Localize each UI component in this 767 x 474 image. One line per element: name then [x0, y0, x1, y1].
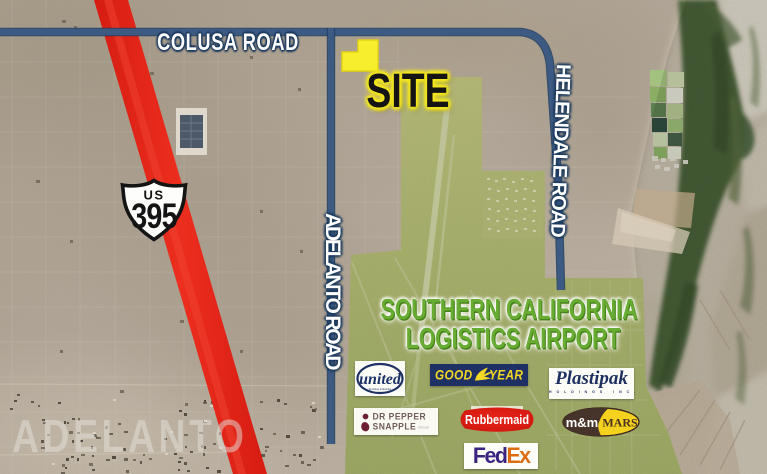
svg-text:GROUP: GROUP — [418, 426, 429, 430]
svg-text:Rubbermaid: Rubbermaid — [465, 413, 529, 427]
svg-text:YEAR: YEAR — [489, 367, 523, 383]
svg-text:395: 395 — [131, 196, 177, 235]
svg-text:SNAPPLE: SNAPPLE — [373, 421, 417, 431]
svg-text:GOOD: GOOD — [435, 367, 473, 383]
svg-text:united: united — [359, 371, 402, 388]
svg-text:MARS: MARS — [602, 416, 638, 430]
svg-text:Furniture Industries: Furniture Industries — [369, 387, 392, 391]
svg-text:m&m: m&m — [566, 415, 599, 430]
svg-text:DR PEPPER: DR PEPPER — [373, 411, 427, 421]
